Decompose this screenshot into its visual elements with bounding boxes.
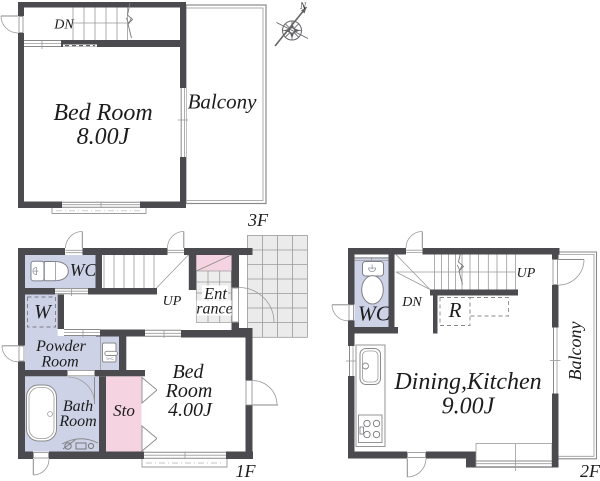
svg-text:WC: WC: [70, 260, 97, 280]
svg-text:2F: 2F: [580, 461, 600, 481]
svg-text:UP: UP: [163, 294, 182, 309]
svg-text:rance: rance: [196, 301, 232, 318]
svg-text:9.00J: 9.00J: [442, 394, 496, 420]
svg-text:UP: UP: [517, 266, 536, 281]
svg-text:8.00J: 8.00J: [77, 124, 131, 150]
svg-text:DN: DN: [53, 18, 74, 33]
svg-text:Room: Room: [58, 413, 96, 430]
svg-text:Bed Room: Bed Room: [53, 100, 152, 126]
svg-text:Dining,Kitchen: Dining,Kitchen: [393, 369, 541, 395]
svg-text:Balcony: Balcony: [565, 322, 585, 381]
svg-text:N: N: [299, 1, 307, 11]
svg-text:W: W: [34, 301, 53, 323]
svg-text:Room: Room: [40, 354, 78, 371]
svg-text:DN: DN: [401, 295, 422, 310]
svg-text:R: R: [448, 298, 462, 322]
svg-text:Sto: Sto: [113, 401, 135, 420]
svg-text:Balcony: Balcony: [188, 90, 257, 114]
svg-text:WC: WC: [358, 302, 391, 326]
svg-text:Powder: Powder: [35, 338, 87, 355]
svg-text:4.00J: 4.00J: [168, 399, 213, 421]
svg-text:1F: 1F: [236, 461, 257, 481]
svg-text:3F: 3F: [247, 210, 269, 230]
